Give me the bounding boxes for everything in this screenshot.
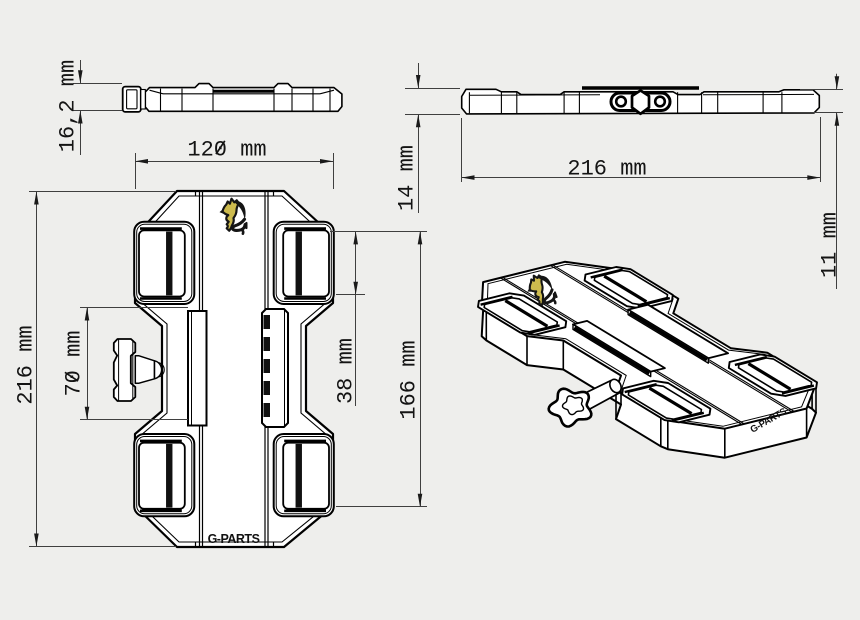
svg-text:14 mm: 14 mm [394, 145, 419, 211]
svg-text:216 mm: 216 mm [13, 325, 38, 404]
svg-text:11 mm: 11 mm [817, 212, 842, 278]
svg-text:16,2 mm: 16,2 mm [55, 60, 80, 152]
svg-text:70 mm: 70 mm [61, 330, 86, 396]
svg-text:38 mm: 38 mm [333, 338, 358, 404]
svg-text:G-PARTS: G-PARTS [208, 532, 260, 546]
svg-text:120 mm: 120 mm [187, 137, 266, 162]
svg-text:216 mm: 216 mm [567, 156, 646, 181]
svg-text:166 mm: 166 mm [396, 340, 421, 419]
